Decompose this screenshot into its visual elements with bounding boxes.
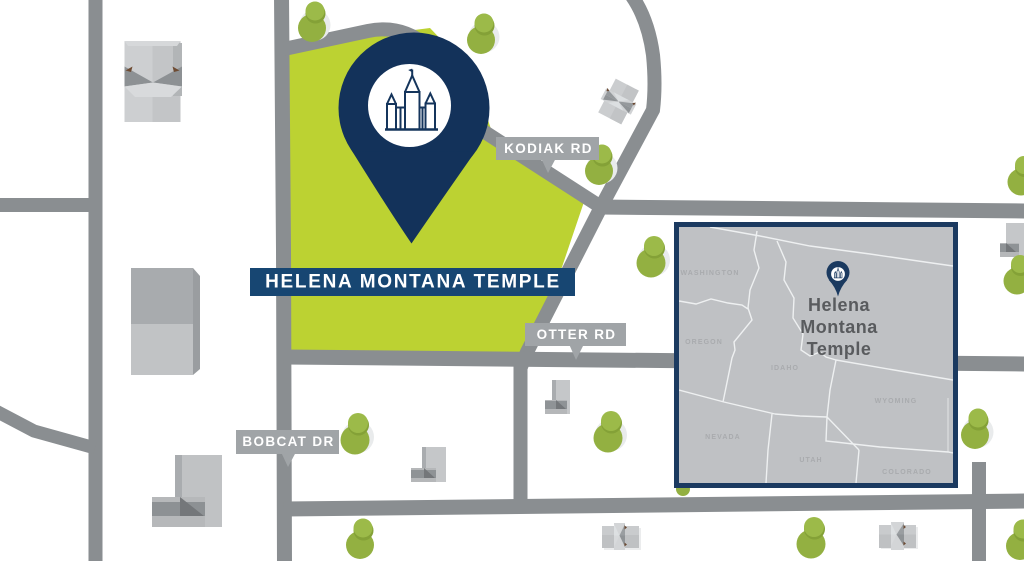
svg-text:BOBCAT DR: BOBCAT DR [242, 434, 334, 449]
svg-text:COLORADO: COLORADO [882, 469, 932, 476]
svg-text:Montana: Montana [800, 317, 878, 337]
svg-text:Helena: Helena [808, 295, 871, 315]
svg-text:IDAHO: IDAHO [771, 365, 799, 372]
svg-text:OREGON: OREGON [685, 339, 723, 346]
svg-text:Temple: Temple [807, 339, 872, 359]
svg-text:HELENA MONTANA TEMPLE: HELENA MONTANA TEMPLE [265, 272, 561, 293]
svg-text:UTAH: UTAH [799, 457, 822, 464]
svg-text:KODIAK RD: KODIAK RD [504, 141, 593, 156]
svg-text:OTTER RD: OTTER RD [537, 327, 617, 342]
svg-text:NEVADA: NEVADA [705, 434, 741, 441]
svg-text:WYOMING: WYOMING [875, 398, 918, 405]
svg-text:WASHINGTON: WASHINGTON [680, 270, 739, 277]
